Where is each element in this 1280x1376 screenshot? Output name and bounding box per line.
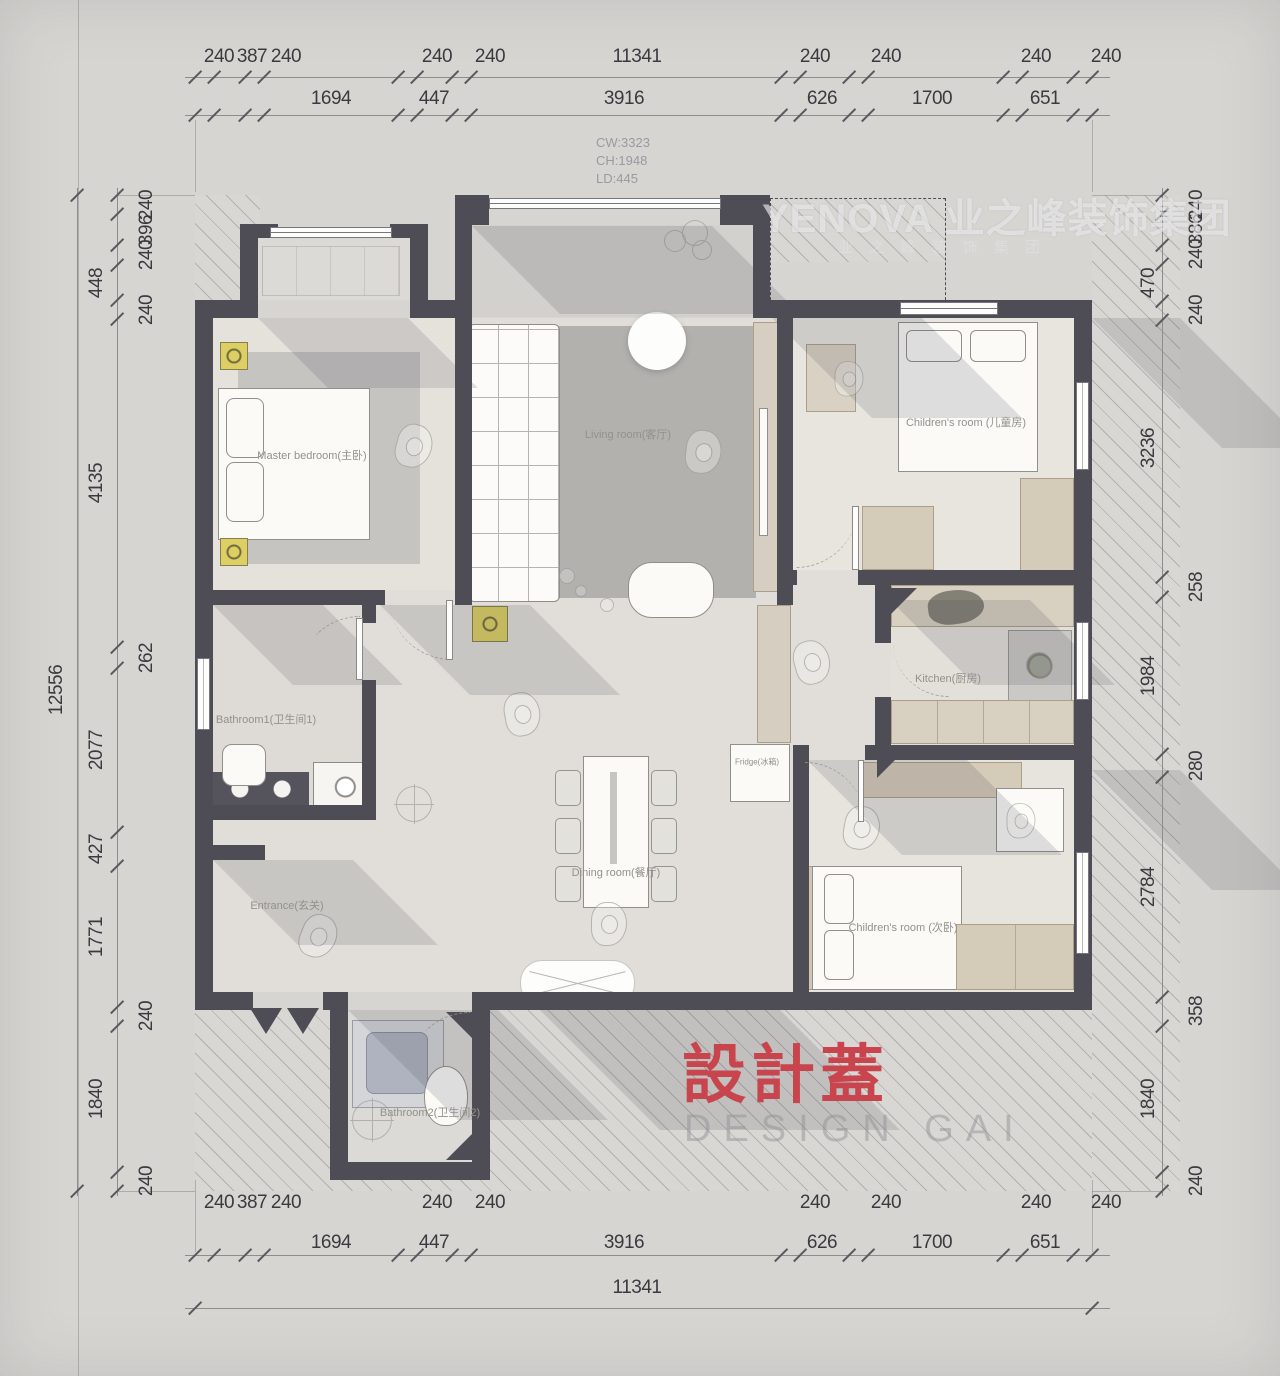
- dimension-label: 387: [237, 1192, 267, 1214]
- wall: [195, 992, 253, 1010]
- corner-closet: [877, 748, 907, 778]
- corner-closet: [891, 588, 917, 614]
- dimension-label: 1840: [1138, 1079, 1160, 1119]
- dimension-label: 1771: [86, 917, 108, 957]
- window: [489, 198, 721, 209]
- dimension-label: 2784: [1138, 867, 1160, 907]
- plant-sketch: [664, 220, 718, 270]
- dimension-label: 626: [807, 88, 837, 110]
- room-label: Kitchen(厨房): [915, 670, 981, 686]
- dimension-label: 240: [271, 1192, 301, 1214]
- wall: [362, 680, 376, 820]
- room-label: Master bedroom(主卧): [257, 447, 366, 463]
- dimension-label: 387: [237, 46, 267, 68]
- dimension-label: 240: [1021, 1192, 1051, 1214]
- dimension-label: 2077: [86, 730, 108, 770]
- wall: [195, 300, 213, 1010]
- door-leaf: [446, 600, 453, 660]
- window: [1076, 852, 1089, 954]
- table-runner: [610, 772, 617, 864]
- wall: [330, 1162, 490, 1180]
- dresser: [862, 506, 934, 570]
- cabinet: [956, 924, 1074, 990]
- room-label: Children's room (次卧): [848, 919, 957, 935]
- dimension-line: [77, 188, 78, 1196]
- pendant-light: [628, 312, 686, 370]
- margin-line: [78, 0, 79, 1376]
- dimension-label: 240: [800, 1192, 830, 1214]
- window-info-cw: CW:3323: [596, 134, 650, 152]
- extension-line: [195, 120, 196, 192]
- dimension-label: 240: [422, 1192, 452, 1214]
- design-stamp-cn: 設計蓋: [682, 1024, 889, 1116]
- dimension-label: 447: [419, 1232, 449, 1254]
- window: [1076, 622, 1089, 700]
- dimension-line: [185, 77, 1110, 78]
- person-sketch: [677, 428, 728, 485]
- toy-sketch: [575, 585, 587, 597]
- wall: [472, 1010, 490, 1180]
- dimension-label: 1840: [86, 1079, 108, 1119]
- wall: [875, 585, 891, 643]
- dimension-label: 12556: [46, 665, 68, 715]
- extension-line: [195, 1180, 196, 1252]
- sofa: [468, 324, 560, 602]
- window-info-ld: LD:445: [596, 170, 650, 188]
- hall-cabinet: [757, 605, 791, 743]
- window: [270, 227, 392, 238]
- desk-chair-sketch: [1003, 803, 1040, 845]
- dimension-label: 258: [1186, 572, 1208, 602]
- dimension-label: 280: [1186, 751, 1208, 781]
- wall: [777, 570, 797, 585]
- person-sketch: [496, 688, 550, 747]
- dimension-label: 470: [1138, 268, 1160, 298]
- dimension-label: 240: [422, 46, 452, 68]
- window: [1076, 382, 1089, 470]
- wall: [777, 318, 793, 605]
- dimension-line: [185, 1255, 1110, 1256]
- wall: [472, 992, 1092, 1010]
- dimension-label: 240: [800, 46, 830, 68]
- dimension-line: [1162, 188, 1163, 1196]
- door-leaf: [858, 760, 864, 822]
- dimension-label: 427: [86, 834, 108, 864]
- dimension-label: 1700: [912, 1232, 952, 1254]
- dimension-label: 3916: [604, 88, 644, 110]
- door-leaf: [356, 618, 363, 680]
- wardrobe: [1020, 478, 1074, 572]
- dimension-label: 240: [136, 1001, 158, 1031]
- person-sketch: [586, 902, 632, 954]
- window: [900, 302, 998, 315]
- dimension-label: 240: [871, 46, 901, 68]
- hatch-right-strip: [1092, 195, 1180, 1191]
- fridge: [730, 744, 790, 802]
- extension-line: [1092, 120, 1093, 192]
- dimension-label: 240: [475, 1192, 505, 1214]
- dimension-label: 358: [1186, 996, 1208, 1026]
- floorplan-canvas: 2403872402402401134124024024024016944473…: [0, 0, 1280, 1376]
- chair: [651, 818, 677, 854]
- dimension-label: 4135: [86, 463, 108, 503]
- dimension-label: 447: [419, 88, 449, 110]
- chair: [555, 770, 581, 806]
- corner-shelf: [446, 1134, 472, 1160]
- dimension-label: 240: [1091, 1192, 1121, 1214]
- dimension-label: 240: [1186, 295, 1208, 325]
- pillow: [906, 330, 962, 362]
- window-info: CW:3323 CH:1948 LD:445: [596, 134, 650, 188]
- coffee-table: [628, 562, 714, 618]
- wall: [858, 570, 1092, 585]
- wall: [323, 992, 348, 1010]
- dimension-line: [185, 115, 1110, 116]
- dimension-label: 240: [271, 46, 301, 68]
- dimension-label: 240: [1021, 46, 1051, 68]
- room-label: Bathroom2(卫生间2): [380, 1104, 480, 1120]
- toy-sketch: [559, 568, 575, 584]
- dimension-line: [117, 188, 118, 1196]
- dimension-label: 448: [86, 268, 108, 298]
- dimension-label: 240: [1186, 1166, 1208, 1196]
- toy-sketch: [600, 598, 614, 612]
- window: [197, 658, 210, 730]
- brand-watermark-sub: 业 之 峰 装 饰 集 团: [838, 236, 1046, 257]
- tv: [759, 408, 768, 536]
- pillow: [824, 930, 854, 980]
- wall: [330, 1010, 348, 1180]
- dimension-label: 1694: [311, 88, 351, 110]
- entry-door-symbol: [250, 1008, 282, 1034]
- dimension-label: 240: [1091, 46, 1121, 68]
- room-label: Children's room (儿童房): [906, 414, 1026, 430]
- dimension-label: 651: [1030, 1232, 1060, 1254]
- wall: [455, 195, 489, 225]
- wall: [195, 845, 265, 860]
- chair: [555, 818, 581, 854]
- dimension-label: 262: [136, 643, 158, 673]
- ceiling-lamp: [472, 606, 508, 642]
- dimension-label: 3916: [604, 1232, 644, 1254]
- water-heater: [222, 744, 266, 786]
- kitchen-counter-bottom: [891, 700, 1074, 744]
- design-stamp-en: DESIGN GAI: [684, 1108, 1026, 1151]
- room-label: Bathroom1(卫生间1): [216, 711, 316, 727]
- dimension-label: 3236: [1138, 428, 1160, 468]
- dimension-label: 240: [136, 1166, 158, 1196]
- door-leaf: [852, 506, 859, 570]
- dimension-label: 1700: [912, 88, 952, 110]
- entry-door-symbol: [287, 1008, 319, 1034]
- dimension-label: 240: [475, 46, 505, 68]
- ceiling-lamp: [220, 538, 248, 566]
- room-label: Dining room(餐厅): [572, 864, 661, 880]
- ceiling-lamp: [220, 342, 248, 370]
- wardrobe-sketch: [262, 246, 400, 296]
- dimension-label: 11341: [613, 46, 662, 68]
- chair: [651, 770, 677, 806]
- desk-chair-sketch: [831, 361, 868, 403]
- pillow: [824, 874, 854, 924]
- dimension-label: 240: [136, 295, 158, 325]
- dimension-label: 1984: [1138, 656, 1160, 696]
- wall: [195, 805, 376, 820]
- room-label: Entrance(玄关): [250, 897, 323, 913]
- exhaust-fan-sketch: [396, 786, 432, 822]
- pillow: [226, 462, 264, 522]
- dimension-label: 240: [204, 46, 234, 68]
- dimension-label: 240: [871, 1192, 901, 1214]
- dimension-label: 240: [204, 1192, 234, 1214]
- wall: [455, 318, 472, 605]
- pillow: [970, 330, 1026, 362]
- wall: [240, 224, 258, 318]
- dimension-line: [185, 1308, 1110, 1309]
- dimension-label: 626: [807, 1232, 837, 1254]
- window-info-ch: CH:1948: [596, 152, 650, 170]
- dimension-label: 651: [1030, 88, 1060, 110]
- plant-sketch: [1026, 652, 1052, 678]
- dimension-label: 1694: [311, 1232, 351, 1254]
- dimension-label: 11341: [613, 1277, 662, 1299]
- wall: [362, 605, 376, 623]
- wall: [793, 745, 809, 760]
- room-label: Living room(客厅): [585, 426, 671, 442]
- room-label: Fridge(冰箱): [735, 757, 779, 768]
- dimension-label: 240: [136, 240, 158, 270]
- wall: [195, 590, 385, 605]
